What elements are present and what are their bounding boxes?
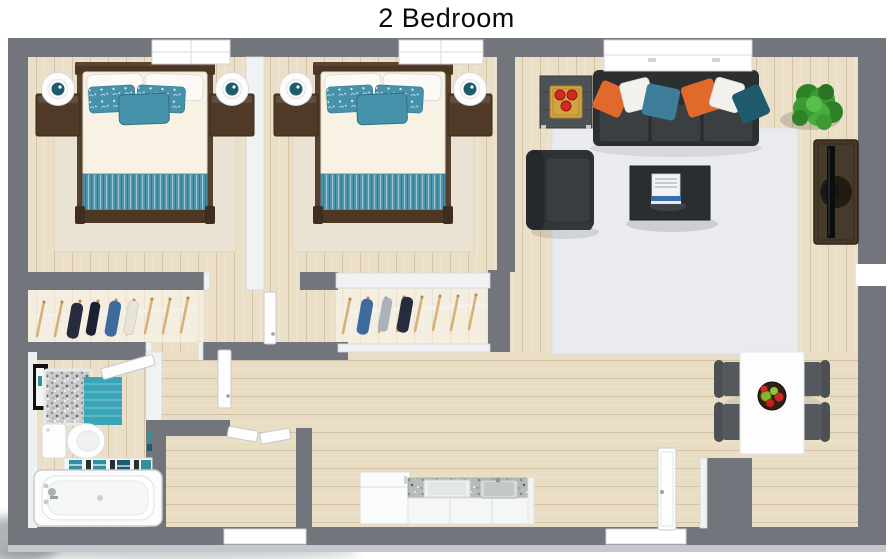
wall-bedroom2-living: [497, 57, 515, 272]
bed-1: [75, 62, 215, 224]
refrigerator: [360, 472, 410, 524]
window-bedroom-1: [152, 40, 230, 64]
toilet: [42, 424, 105, 459]
door-jamb: [204, 272, 210, 290]
kitchen: [360, 472, 534, 524]
closet-2-front-edge: [338, 344, 490, 352]
wall-right: [858, 38, 886, 552]
nightstand-1-left: [36, 73, 80, 137]
tv-console: [814, 140, 858, 244]
floorplan-canvas: 2 Bedroom: [0, 0, 893, 559]
sink: [480, 478, 518, 499]
cooktop: [424, 480, 470, 497]
wall-entry-face: [700, 458, 707, 528]
apple: [567, 90, 577, 100]
nightstand-1-right: [210, 73, 254, 137]
wall-left: [8, 38, 28, 552]
entry-door: [658, 448, 676, 530]
bedroom-1-door: [218, 350, 231, 408]
nightstand-2-left: [274, 73, 318, 137]
tv: [827, 146, 835, 238]
dining-area: [714, 352, 830, 454]
apple: [555, 90, 565, 100]
coffee-table: [626, 166, 718, 232]
floorplan-image: [0, 0, 893, 559]
tub-drain: [97, 495, 103, 501]
wall-bottom-face: [8, 545, 886, 552]
wall-hall-a: [28, 342, 152, 360]
window-bottom: [224, 529, 306, 544]
window-living-room: [604, 40, 752, 71]
toiletry-bottle: [147, 432, 152, 441]
toiletry-bottle: [147, 444, 152, 451]
wall-closet1-back: [28, 272, 204, 290]
bathtub: [34, 470, 162, 526]
wall-stub-mid: [300, 272, 338, 290]
wall-entry-vestibule: [700, 458, 752, 528]
tub-faucet: [48, 488, 56, 496]
apple: [561, 101, 571, 111]
entry-threshold: [606, 529, 686, 544]
door-jamb: [198, 342, 203, 360]
sofa: [591, 70, 771, 146]
armchair: [526, 150, 599, 239]
nightstand-2-right: [448, 73, 492, 137]
bath-mat: [84, 377, 122, 425]
bed-2: [313, 62, 453, 224]
wall-closet2-right: [488, 270, 510, 352]
wall-right-notch: [856, 264, 886, 286]
window-bedroom-2: [399, 40, 483, 64]
wall-den-right: [296, 428, 312, 528]
laptop: [651, 174, 681, 204]
wall-bottom: [8, 527, 886, 545]
wall-closet2-back: [336, 273, 490, 288]
side-table: [540, 76, 592, 129]
wall-den-top: [146, 420, 230, 436]
bedroom-2-door: [264, 292, 276, 344]
fruit-bowl: [758, 382, 786, 410]
